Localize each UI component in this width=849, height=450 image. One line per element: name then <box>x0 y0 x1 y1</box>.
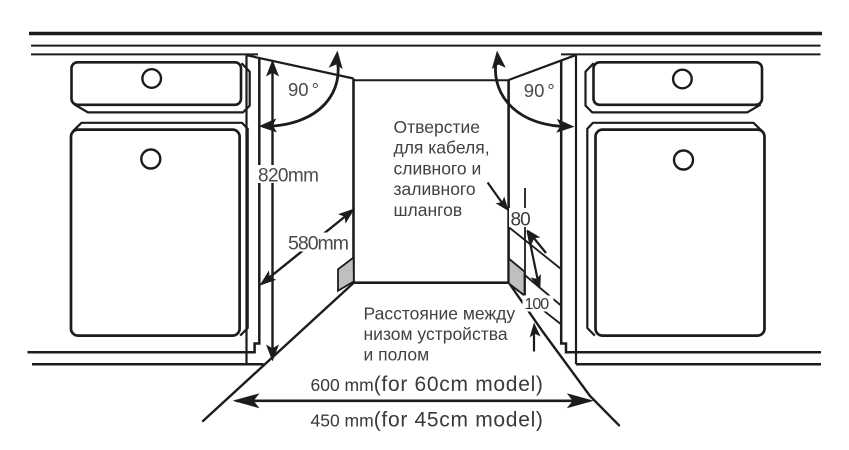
svg-text:и полом: и полом <box>364 345 430 365</box>
svg-text:820mm: 820mm <box>258 166 318 187</box>
svg-text:450 mm(for 45cm model): 450 mm(for 45cm model) <box>311 409 544 432</box>
svg-text:90°: 90° <box>288 79 319 100</box>
svg-text:80: 80 <box>511 210 531 231</box>
svg-text:шлангов: шлангов <box>394 200 463 220</box>
svg-text:для кабеля,: для кабеля, <box>394 138 490 158</box>
svg-text:заливного: заливного <box>394 179 476 199</box>
svg-text:580mm: 580mm <box>288 233 348 255</box>
svg-text:100: 100 <box>525 296 550 313</box>
svg-text:Расстояние между: Расстояние между <box>364 304 516 324</box>
svg-text:90°: 90° <box>524 80 555 101</box>
svg-text:600 mm(for 60cm model): 600 mm(for 60cm model) <box>311 373 544 396</box>
svg-text:Отверстие: Отверстие <box>394 117 480 137</box>
svg-text:сливного и: сливного и <box>394 158 482 178</box>
svg-text:низом устройства: низом устройства <box>364 324 508 344</box>
